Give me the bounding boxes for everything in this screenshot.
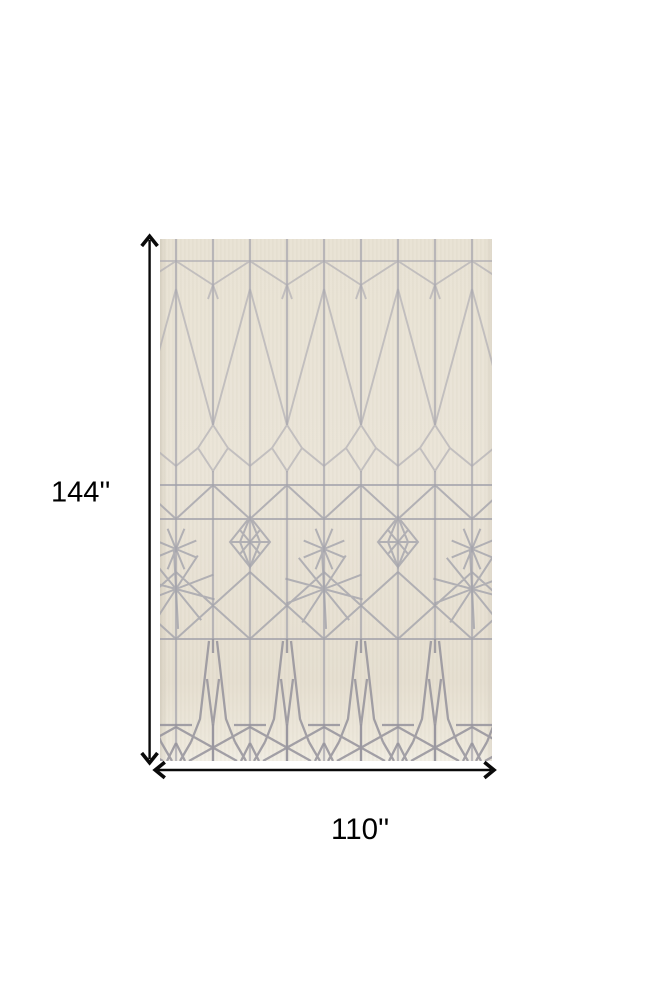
svg-text:110'': 110''	[331, 813, 389, 846]
svg-text:144'': 144''	[51, 477, 110, 509]
